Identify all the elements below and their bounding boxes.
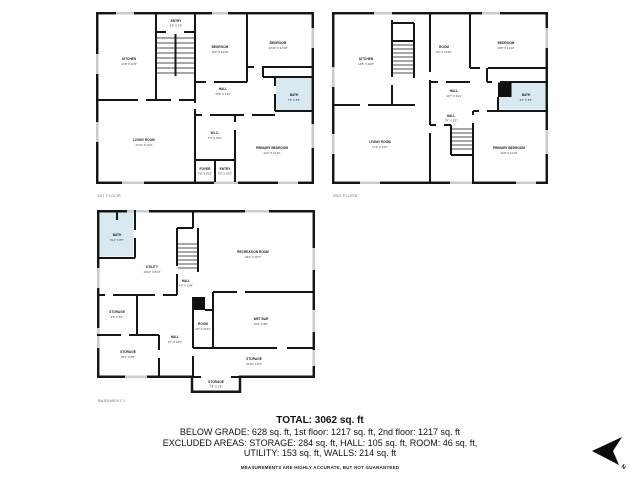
room-label-hall: HALL 10'8" X 4'11" bbox=[215, 87, 231, 96]
basement-plan: BATH 5'11" X 8'5" UTILITY 13'10" X 8'10"… bbox=[97, 210, 315, 410]
room-label-storage-4: STORAGE 7'8" X 2'8" bbox=[208, 380, 224, 389]
room-name: RECREATION ROOM bbox=[237, 250, 269, 254]
room-label-bedroom: BEDROOM 10'8" X 12'10" bbox=[497, 41, 514, 50]
room-label-living-room: LIVING ROOM 17'1" X 14'2" bbox=[369, 140, 391, 149]
room-label-utility: UTILITY 13'10" X 8'10" bbox=[143, 265, 160, 274]
room-dims: 4'6" X 15'8" bbox=[179, 284, 193, 288]
room-dims: 12'2" X 12'10" bbox=[263, 151, 280, 155]
area-summary: TOTAL: 3062 sq. ft BELOW GRADE: 628 sq. … bbox=[0, 415, 640, 470]
room-dims: 4'7" X 10'5" bbox=[168, 340, 182, 344]
room-name: BEDROOM bbox=[498, 41, 515, 45]
room-dims: 12'9" X 12'10" bbox=[500, 151, 517, 155]
room-dims: 13'10" X 8'10" bbox=[143, 270, 160, 274]
room-dims: 5'8" X 6'5" bbox=[111, 315, 124, 319]
room-dims: 8'8" X 3'9" bbox=[170, 24, 183, 28]
room-name: HALL bbox=[450, 89, 459, 93]
room-name: STORAGE bbox=[109, 310, 125, 314]
room-dims: 8'11" X 8'8" bbox=[121, 355, 135, 359]
room-name: HALL bbox=[171, 335, 180, 339]
room-label-entry-bottom: ENTRY 3'6" X 6'10" bbox=[218, 167, 232, 176]
room-dims: 17'1" X 14'2" bbox=[372, 145, 388, 149]
room-dims: 12'2" X 12'10" bbox=[211, 50, 228, 54]
floor-plan-page: ENTRY 8'8" X 3'9" KITCHEN 14'8" X 11'6" … bbox=[0, 0, 640, 480]
room-label-foyer: FOYER 3'6" X 6'10" bbox=[198, 167, 212, 176]
room-name: ROOM bbox=[439, 45, 449, 49]
room-label-storage-3: STORAGE 20'10" X 8'7" bbox=[246, 357, 262, 366]
room-name: W.I.C. bbox=[211, 131, 220, 135]
room-label-hall-upper: HALL 10'7" X 6'11" bbox=[446, 89, 462, 98]
room-dims: 20'4" X 15'7" bbox=[245, 255, 261, 259]
room-label-primary-bedroom: PRIMARY BEDROOM 12'9" X 12'10" bbox=[493, 146, 525, 155]
room-name: ENTRY bbox=[171, 19, 183, 23]
room-label-wic: W.I.C. 7'4" X 3'10" bbox=[208, 131, 222, 140]
room-name: STORAGE bbox=[208, 380, 224, 384]
room-name: WET BAR bbox=[254, 317, 270, 321]
basement-drawing: BATH 5'11" X 8'5" UTILITY 13'10" X 8'10"… bbox=[97, 210, 315, 394]
room-label-storage-2: STORAGE 8'11" X 8'8" bbox=[120, 350, 136, 359]
room-dims: 10'10" X 12'10" bbox=[269, 46, 288, 50]
room-name: BATH bbox=[522, 93, 531, 97]
room-label-bedroom-center: BEDROOM 12'2" X 12'10" bbox=[211, 45, 228, 54]
room-name: HALL bbox=[219, 87, 228, 91]
room-label-living-room: LIVING ROOM 17'11" X 14'2" bbox=[133, 138, 155, 147]
room-label-room: ROOM 9'1" X 12'10" bbox=[436, 45, 452, 54]
room-label-hall-upper: HALL 4'6" X 15'8" bbox=[179, 279, 193, 288]
room-dims: 10'7" X 6'11" bbox=[446, 94, 462, 98]
room-name: KITCHEN bbox=[122, 57, 137, 61]
north-arrow-glyph bbox=[592, 437, 622, 465]
room-label-storage-1: STORAGE 5'8" X 6'5" bbox=[109, 310, 125, 319]
room-dims: 7'6" X 8'5" bbox=[288, 98, 301, 102]
room-label-entry-top: ENTRY 8'8" X 3'9" bbox=[170, 19, 183, 28]
room-dims: 9'1" X 12'10" bbox=[436, 50, 452, 54]
room-dims: 17'11" X 14'2" bbox=[135, 143, 152, 147]
room-dims: 7'4" X 3'10" bbox=[208, 136, 222, 140]
room-label-wet-bar: WET BAR 10'2" X 8'8" bbox=[254, 317, 270, 326]
room-dims: 3'6" X 6'10" bbox=[198, 172, 212, 176]
north-arrow-icon: N bbox=[589, 433, 631, 471]
room-name: PRIMARY BEDROOM bbox=[493, 146, 525, 150]
room-label-primary-bedroom: PRIMARY BEDROOM 12'2" X 12'10" bbox=[256, 146, 288, 155]
room-dims: 4'2" X 10'11" bbox=[195, 327, 211, 331]
room-name: HALL bbox=[447, 114, 456, 118]
stairs bbox=[178, 244, 197, 268]
room-label-hall-lower: HALL 4'7" X 10'5" bbox=[168, 335, 182, 344]
room-name: BATH bbox=[290, 93, 299, 97]
room-name: KITCHEN bbox=[359, 57, 374, 61]
chimney bbox=[498, 83, 512, 98]
second-floor-drawing: KITCHEN 14'8" X 10'8" ROOM 9'1" X 12'10"… bbox=[332, 12, 548, 184]
room-name: PRIMARY BEDROOM bbox=[256, 146, 288, 150]
room-name: FOYER bbox=[200, 167, 212, 171]
room-name: ENTRY bbox=[220, 167, 232, 171]
room-dims: 14'8" X 11'6" bbox=[121, 62, 137, 66]
room-label-recreation-room: RECREATION ROOM 20'4" X 15'7" bbox=[237, 250, 269, 259]
room-name: BATH bbox=[113, 233, 122, 237]
first-floor-plan: ENTRY 8'8" X 3'9" KITCHEN 14'8" X 11'6" … bbox=[96, 12, 314, 208]
room-dims: 3'6" X 6'10" bbox=[218, 172, 232, 176]
room-dims: 7'8" X 2'8" bbox=[210, 385, 223, 389]
summary-line-1: BELOW GRADE: 628 sq. ft, 1st floor: 1217… bbox=[0, 427, 640, 438]
room-dims: 7'4" X 5'3" bbox=[445, 119, 458, 123]
room-label-bedroom-right: BEDROOM 10'10" X 12'10" bbox=[269, 41, 288, 50]
room-dims: 9'5" X 8'5" bbox=[520, 98, 533, 102]
room-dims: 10'2" X 8'8" bbox=[254, 322, 268, 326]
floor-label-1st: 1ST FLOOR bbox=[97, 193, 121, 198]
room-name: LIVING ROOM bbox=[133, 138, 155, 142]
room-name: LIVING ROOM bbox=[369, 140, 391, 144]
room-dims: 5'11" X 8'5" bbox=[110, 238, 124, 242]
room-dims: 20'10" X 8'7" bbox=[246, 362, 262, 366]
first-floor-drawing: ENTRY 8'8" X 3'9" KITCHEN 14'8" X 11'6" … bbox=[96, 12, 314, 184]
room-label-hall-lower: HALL 7'4" X 5'3" bbox=[445, 114, 458, 123]
room-label-kitchen: KITCHEN 14'8" X 10'8" bbox=[358, 57, 374, 66]
floor-label-basement: BASEMENT 1 bbox=[98, 398, 125, 403]
summary-line-2: EXCLUDED AREAS: STORAGE: 284 sq. ft, HAL… bbox=[0, 438, 640, 449]
second-floor-plan: KITCHEN 14'8" X 10'8" ROOM 9'1" X 12'10"… bbox=[332, 12, 548, 208]
total-area: TOTAL: 3062 sq. ft bbox=[0, 415, 640, 426]
room-label-room: ROOM 4'2" X 10'11" bbox=[195, 322, 211, 331]
room-name: ROOM bbox=[198, 322, 208, 326]
room-name: BEDROOM bbox=[212, 45, 229, 49]
room-dims: 10'8" X 12'10" bbox=[497, 46, 514, 50]
room-name: STORAGE bbox=[246, 357, 262, 361]
room-name: BEDROOM bbox=[270, 41, 287, 45]
summary-line-3: UTILITY: 153 sq. ft, WALLS: 214 sq. ft bbox=[0, 448, 640, 459]
north-arrow: N bbox=[589, 433, 631, 476]
disclaimer-text: MEASUREMENTS ARE HIGHLY ACCURATE, BUT NO… bbox=[0, 465, 640, 470]
room-name: UTILITY bbox=[146, 265, 159, 269]
floor-label-2nd: 2ND FLOOR bbox=[333, 193, 358, 198]
room-dims: 14'8" X 10'8" bbox=[358, 62, 374, 66]
room-label-kitchen: KITCHEN 14'8" X 11'6" bbox=[121, 57, 137, 66]
room-name: HALL bbox=[182, 279, 191, 283]
room-dims: 10'8" X 4'11" bbox=[215, 92, 231, 96]
room-name: STORAGE bbox=[120, 350, 136, 354]
north-label: N bbox=[620, 464, 627, 471]
